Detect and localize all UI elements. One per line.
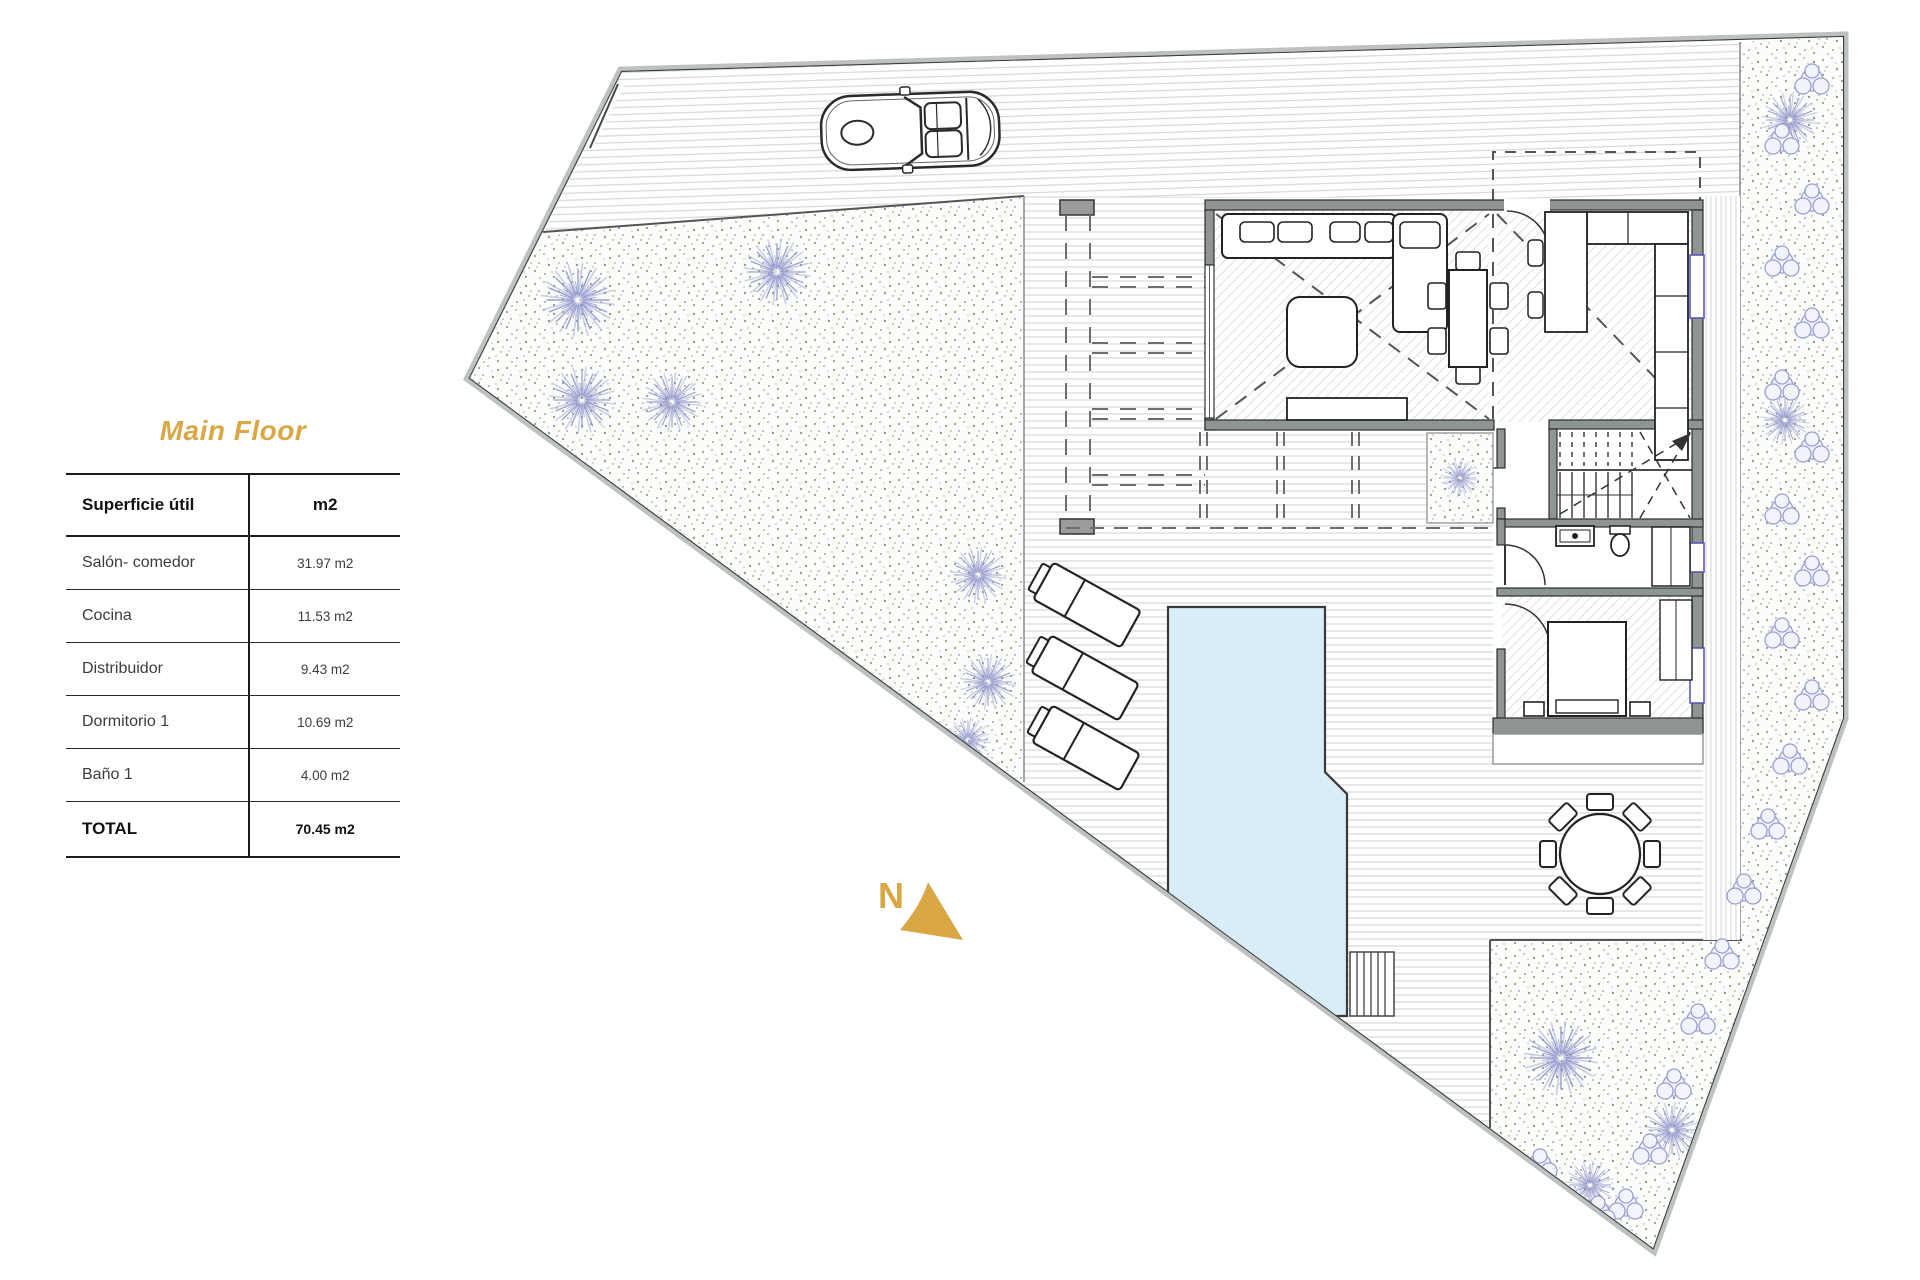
side-walkway — [1703, 196, 1740, 940]
terrace-step — [1493, 734, 1703, 764]
kitchen-island — [1545, 212, 1587, 332]
car — [820, 84, 1001, 176]
garden-left — [470, 196, 1024, 782]
coffee-table — [1287, 297, 1357, 367]
nightstand — [1630, 702, 1650, 716]
pergola-post — [1060, 200, 1094, 215]
floor-plan-page: Main Floor Superficie útil m2 Salón- com… — [0, 0, 1920, 1280]
pergola-post — [1060, 519, 1094, 534]
stool — [1528, 240, 1543, 266]
north-arrow-icon — [900, 882, 963, 940]
stool — [1528, 292, 1543, 318]
pool-steps — [1350, 952, 1394, 1016]
site-plan: N — [0, 0, 1920, 1280]
north-arrow: N — [878, 875, 963, 940]
entrance-door-gap — [1504, 199, 1550, 211]
toilet-tank — [1610, 526, 1630, 534]
kitchen-counter-top — [1587, 212, 1688, 244]
courtyard-planter — [1427, 433, 1493, 523]
sideboard — [1287, 398, 1407, 420]
north-label: N — [878, 875, 904, 916]
bed-pillow — [1556, 700, 1618, 713]
nightstand — [1524, 702, 1544, 716]
toilet — [1611, 534, 1629, 556]
